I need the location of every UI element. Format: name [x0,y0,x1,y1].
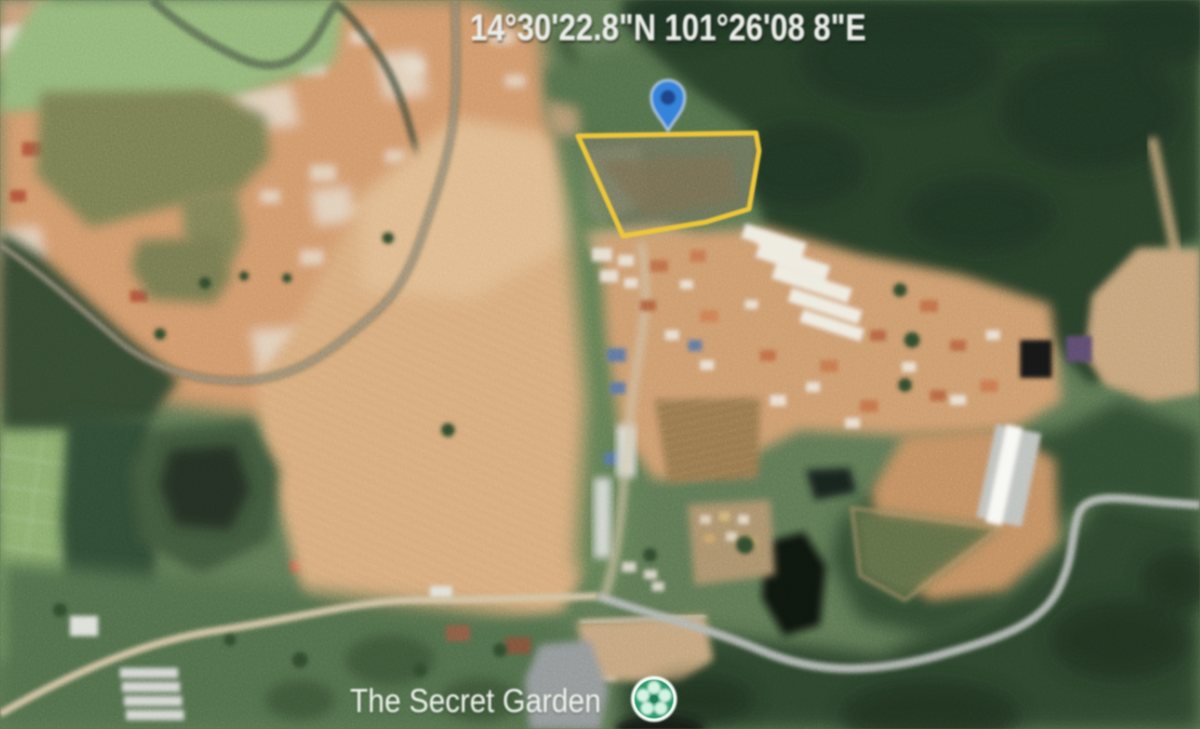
svg-text:14°30'22.8"N 101°26'08 8"E: 14°30'22.8"N 101°26'08 8"E [470,7,866,48]
svg-text:The Secret Garden: The Secret Garden [350,682,601,719]
